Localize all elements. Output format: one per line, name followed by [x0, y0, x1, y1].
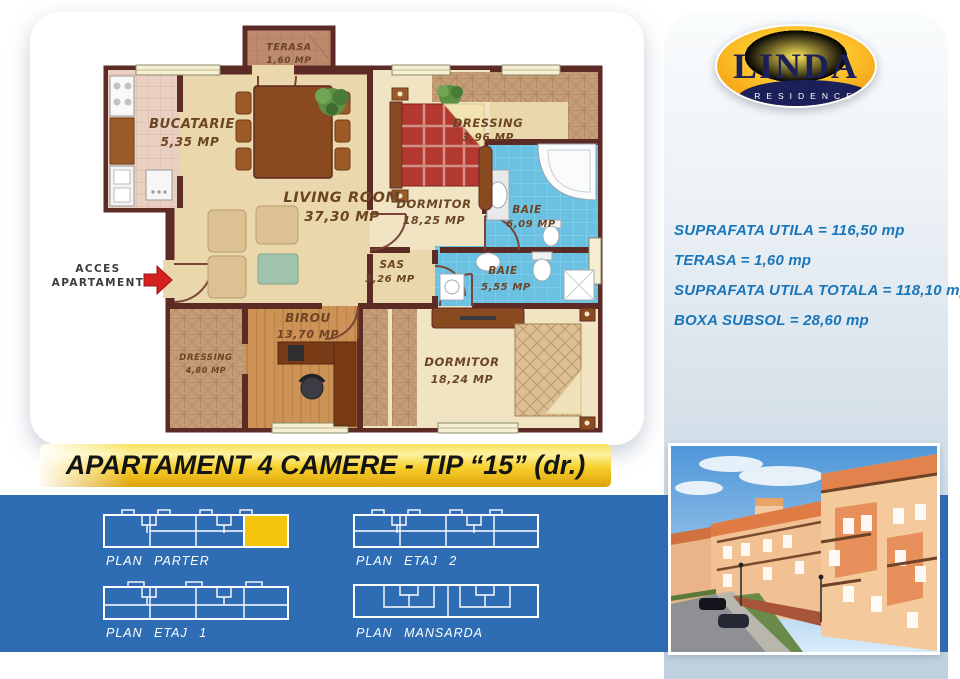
wardrobe-dorm2-a [363, 308, 388, 426]
plan-parter-label: PLAN PARTER [106, 554, 306, 568]
room-label-birou: BIROU [285, 311, 331, 325]
building-plans: PLAN PARTER PLAN ETAJ 2 PLAN ETAJ 1 [98, 505, 576, 640]
plan-etaj2: PLAN ETAJ 2 [348, 505, 556, 568]
room-area-dressing2: 4,80 MP [185, 366, 227, 375]
room-label-sas: SAS [379, 259, 404, 271]
room-area-baie1: 6,09 MP [506, 219, 556, 230]
room-area-sas: 3,26 MP [365, 274, 415, 285]
brand-name: LINDA [733, 46, 859, 86]
room-area-dormitor1: 18,25 MP [403, 214, 465, 227]
room-label-dormitor1: DORMITOR [396, 197, 471, 211]
room-label-terasa: TERASA [266, 42, 311, 53]
info-suprafata-totala: SUPRAFATA UTILA TOTALA = 118,10 mp [674, 282, 946, 300]
plan-mansarda: PLAN MANSARDA [348, 577, 556, 640]
brand-sub: RESIDENCE [754, 91, 858, 101]
room-area-birou: 13,70 MP [277, 328, 339, 341]
plan-parter: PLAN PARTER [98, 505, 306, 568]
info-boxa-subsol: BOXA SUBSOL = 28,60 mp [674, 312, 946, 330]
brochure-page: ACCES APARTAMENT TERASA 1,60 MP BUCATARI… [0, 0, 960, 679]
wardrobe-dorm2-b [392, 308, 417, 426]
plan-parter-thumbnail [98, 505, 294, 551]
room-area-living: 37,30 MP [304, 209, 380, 225]
brand-logo: LINDA RESIDENCE [712, 22, 880, 114]
bed-dormitor1 [390, 88, 484, 202]
room-label-bucatarie: BUCATARIE [149, 117, 235, 132]
surface-info: SUPRAFATA UTILA = 116,50 mp TERASA = 1,6… [674, 222, 946, 342]
info-terasa: TERASA = 1,60 mp [674, 252, 946, 270]
plan-mansarda-thumbnail [348, 577, 544, 623]
access-label-1: ACCES [75, 263, 120, 275]
terasa-door-gap [252, 65, 294, 75]
room-area-baie2: 5,55 MP [481, 282, 531, 293]
room-label-baie1: BAIE [512, 204, 542, 216]
info-suprafata-utila: SUPRAFATA UTILA = 116,50 mp [674, 222, 946, 240]
room-area-dormitor2: 18,24 MP [431, 373, 493, 386]
plan-mansarda-label: PLAN MANSARDA [356, 626, 556, 640]
access-label-2: APARTAMENT [52, 277, 145, 289]
room-label-baie2: BAIE [488, 265, 518, 277]
plan-etaj1-label: PLAN ETAJ 1 [106, 626, 306, 640]
plan-etaj1: PLAN ETAJ 1 [98, 577, 306, 640]
apartment-title: APARTAMENT 4 CAMERE - TIP “15” (dr.) [66, 450, 586, 481]
title-banner: APARTAMENT 4 CAMERE - TIP “15” (dr.) [40, 444, 611, 487]
room-area-bucatarie: 5,35 MP [161, 135, 220, 149]
room-area-dressing1: 3,96 MP [462, 132, 514, 144]
wardrobe-right [568, 72, 598, 144]
room-label-living: LIVING ROOM [283, 190, 400, 206]
room-area-terasa: 1,60 MP [266, 56, 311, 66]
plan-etaj1-thumbnail [98, 577, 294, 623]
plan-etaj2-label: PLAN ETAJ 2 [356, 554, 556, 568]
residence-photo [668, 443, 940, 655]
floorplan-drawing: ACCES APARTAMENT TERASA 1,60 MP BUCATARI… [40, 14, 640, 442]
room-label-dormitor2: DORMITOR [424, 355, 499, 369]
room-label-dressing2: DRESSING [179, 353, 232, 363]
plan-etaj2-thumbnail [348, 505, 544, 551]
room-label-dressing1: DRESSING [453, 116, 524, 130]
